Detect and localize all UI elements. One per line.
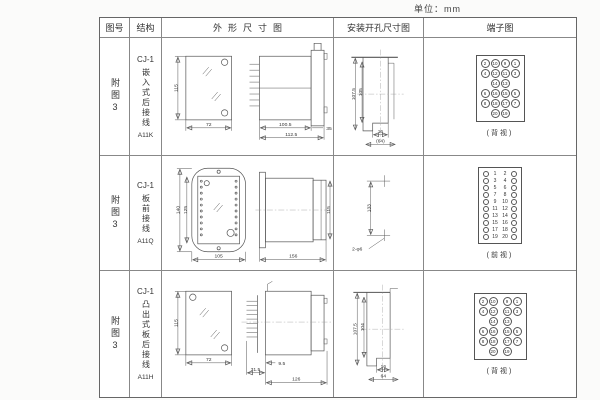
terminal-hole (483, 171, 489, 177)
dim-label: 9.5 (278, 361, 285, 367)
terminal-16: 16 (491, 89, 500, 98)
terminal-2: 2 (479, 297, 488, 306)
outline-diagram-row1: 115 72 100.5 112.5 (162, 38, 334, 156)
terminal-hole (511, 185, 517, 191)
structure-row3: CJ-1 凸出式板后接线 A11H (130, 271, 162, 397)
terminal-19: 19 (501, 109, 510, 118)
structure-row2: CJ-1 板前接线 A11Q (130, 156, 162, 271)
terminal-10: 10 (489, 297, 498, 306)
code-label: A11K (138, 132, 153, 139)
terminal-13: 13 (501, 79, 510, 88)
install-svg-row1: 107.5 105 16 (64) (334, 40, 423, 154)
terminal-hole (483, 199, 489, 205)
dim-label: 115 (173, 319, 179, 327)
terminal-6: 6 (481, 89, 490, 98)
terminal-12: 12 (501, 206, 509, 212)
terminal-18: 18 (501, 227, 509, 233)
terminal-18: 18 (489, 337, 498, 346)
terminal-14: 14 (489, 317, 498, 326)
terminal-hole (483, 234, 489, 240)
terminal-view-label: (前视) (487, 250, 514, 260)
terminal-16: 16 (501, 220, 509, 226)
terminal-4: 4 (481, 69, 490, 78)
fig-no-row1: 附图3 (100, 38, 130, 156)
terminal-diagram-row2: 1234567891011121314151617181920 (前视) (424, 156, 576, 271)
dim-label: 72 (206, 357, 212, 363)
model-label: CJ-1 (137, 181, 154, 190)
dim-label: 156 (289, 254, 298, 260)
terminal-7: 7 (513, 337, 522, 346)
install-diagram-row2: 133 2-φ6 (334, 156, 424, 271)
terminal-hole (511, 213, 517, 219)
structure-text: 板前接线 (142, 194, 150, 234)
dim-label: 105 (215, 254, 224, 260)
model-label: CJ-1 (137, 55, 154, 64)
terminal-blank (481, 109, 490, 118)
terminal-hole (483, 206, 489, 212)
side-view: 100.5 112.5 35 (249, 43, 332, 139)
terminal-18: 18 (491, 99, 500, 108)
terminal-15: 15 (491, 220, 499, 226)
outline-svg-row1: 115 72 100.5 112.5 (162, 40, 333, 154)
terminal-hole (511, 220, 517, 226)
terminal-3: 3 (491, 178, 499, 184)
terminal-diagram-row1: 2109141211314136161558181772019 (背视) (424, 38, 576, 156)
code-label: A11H (138, 374, 154, 381)
outline-svg-row3: 115 72 9.5 31.5 (162, 275, 333, 393)
dim-label: 100.5 (279, 121, 292, 127)
terminal-hole (511, 171, 517, 177)
terminal-hole (483, 178, 489, 184)
terminal-blank (511, 79, 520, 88)
dim-label: 107.5 (353, 323, 359, 335)
hole-cross-bottom (379, 229, 391, 241)
code-label: A11Q (137, 238, 153, 245)
terminal-14: 14 (491, 79, 500, 88)
fig-no-row2: 附图3 (100, 156, 130, 271)
terminal-12: 12 (489, 307, 498, 316)
hole-cross-top (379, 175, 391, 187)
dim-label: 107.5 (351, 87, 357, 99)
dim-label: 112.5 (285, 131, 297, 137)
terminal-hole (483, 220, 489, 226)
terminal-box: 2109141211314136161558181772019 (476, 55, 525, 122)
terminal-9: 9 (491, 199, 499, 205)
terminal-1: 1 (491, 171, 499, 177)
terminal-8: 8 (479, 337, 488, 346)
structure-row1: CJ-1 嵌入式后接线 A11K (130, 38, 162, 156)
terminal-9: 9 (503, 297, 512, 306)
dim-label: 104 (360, 323, 366, 331)
dim-label: 2-φ6 (352, 247, 362, 253)
structure-text: 嵌入式后接线 (142, 68, 150, 128)
terminal-box: 1234567891011121314151617181920 (478, 167, 522, 244)
terminal-blank (513, 347, 522, 356)
terminal-dots (200, 180, 237, 236)
terminal-2: 2 (481, 59, 490, 68)
terminal-blank (481, 79, 490, 88)
dim-label: 105 (358, 87, 364, 95)
outline-svg-row2: 140 125 105 156 115 (162, 160, 333, 266)
terminal-hole (511, 227, 517, 233)
front-view: 115 72 (173, 291, 231, 366)
terminal-blank (513, 317, 522, 326)
front-view: 140 125 105 (175, 168, 245, 261)
terminal-5: 5 (513, 327, 522, 336)
terminal-11: 11 (503, 307, 512, 316)
dim-label: (64) (376, 138, 385, 144)
terminal-3: 3 (511, 69, 520, 78)
terminal-19: 19 (491, 234, 499, 240)
dim-label: 16 (381, 364, 387, 370)
terminal-20: 20 (489, 347, 498, 356)
terminal-hole (511, 199, 517, 205)
header-terminal: 端子图 (424, 18, 576, 38)
header-install: 安装开孔尺寸图 (334, 18, 424, 38)
model-label: CJ-1 (137, 287, 154, 296)
terminal-blank (511, 109, 520, 118)
terminal-13: 13 (503, 317, 512, 326)
side-view: 9.5 31.5 126 (242, 281, 331, 384)
terminal-20: 20 (501, 234, 509, 240)
fig-no-text: 附图3 (110, 316, 119, 353)
terminal-8: 8 (481, 99, 490, 108)
dim-label: 16 (378, 128, 384, 134)
terminal-blank (479, 347, 488, 356)
terminal-hole (511, 234, 517, 240)
front-view: 115 72 (173, 56, 231, 131)
terminal-hole (511, 192, 517, 198)
dim-label: 125 (183, 206, 189, 215)
terminal-16: 16 (489, 327, 498, 336)
fig-no-row3: 附图3 (100, 271, 130, 397)
terminal-6: 6 (501, 185, 509, 191)
terminal-4: 4 (501, 178, 509, 184)
outline-diagram-row2: 140 125 105 156 115 (162, 156, 334, 271)
terminal-view-label: (背视) (487, 366, 514, 376)
terminal-14: 14 (501, 213, 509, 219)
structure-text: 凸出式板后接线 (142, 300, 150, 370)
dim-label: 31.5 (251, 367, 261, 373)
terminal-3: 3 (513, 307, 522, 316)
terminal-10: 10 (501, 199, 509, 205)
terminal-8: 8 (501, 192, 509, 198)
terminal-1: 1 (513, 297, 522, 306)
terminal-4: 4 (479, 307, 488, 316)
terminal-blank (479, 317, 488, 326)
unit-label: 单位：mm (414, 2, 461, 15)
side-view: 156 115 (255, 172, 332, 261)
terminal-10: 10 (491, 59, 500, 68)
dim-label: 35 (326, 125, 332, 131)
terminal-box: 2109141211314136161558181772019 (474, 293, 527, 360)
terminal-7: 7 (511, 99, 520, 108)
terminal-20: 20 (491, 109, 500, 118)
terminal-13: 13 (491, 213, 499, 219)
dim-label: 115 (326, 206, 332, 214)
terminal-hole (483, 185, 489, 191)
terminal-15: 15 (501, 89, 510, 98)
terminal-12: 12 (491, 69, 500, 78)
dim-label: 64 (381, 374, 387, 380)
terminal-15: 15 (503, 327, 512, 336)
terminal-9: 9 (501, 59, 510, 68)
terminal-hole (483, 227, 489, 233)
terminal-hole (511, 178, 517, 184)
terminal-7: 7 (491, 192, 499, 198)
terminal-11: 11 (491, 206, 499, 212)
spec-table: 图号 结构 外形尺寸图 安装开孔尺寸图 端子图 附图3 CJ-1 嵌入式后接线 … (99, 17, 577, 398)
install-svg-row2: 133 2-φ6 (334, 160, 423, 266)
terminal-hole (483, 192, 489, 198)
dim-label: 133 (366, 204, 372, 212)
terminal-hole (483, 213, 489, 219)
terminal-19: 19 (503, 347, 512, 356)
fig-no-text: 附图3 (110, 78, 119, 115)
header-fig-no: 图号 (100, 18, 130, 38)
dim-label: 72 (206, 121, 212, 127)
install-diagram-row1: 107.5 105 16 (64) (334, 38, 424, 156)
terminal-17: 17 (503, 337, 512, 346)
dim-label: 126 (292, 377, 301, 383)
terminal-view-label: (背视) (487, 128, 514, 138)
terminal-5: 5 (511, 89, 520, 98)
terminal-5: 5 (491, 185, 499, 191)
terminal-hole (511, 206, 517, 212)
dim-label: 115 (173, 83, 179, 91)
outline-diagram-row3: 115 72 9.5 31.5 (162, 271, 334, 397)
terminal-17: 17 (501, 99, 510, 108)
install-diagram-row3: 107.5 104 16 64 (334, 271, 424, 397)
terminal-17: 17 (491, 227, 499, 233)
terminal-11: 11 (501, 69, 510, 78)
terminal-6: 6 (479, 327, 488, 336)
fig-no-text: 附图3 (110, 195, 119, 232)
terminal-diagram-row3: 2109141211314136161558181772019 (背视) (424, 271, 576, 397)
dim-label: 140 (175, 206, 181, 215)
install-svg-row3: 107.5 104 16 64 (334, 275, 423, 393)
header-outline: 外形尺寸图 (162, 18, 334, 38)
terminal-1: 1 (511, 59, 520, 68)
terminal-2: 2 (501, 171, 509, 177)
header-structure: 结构 (130, 18, 162, 38)
